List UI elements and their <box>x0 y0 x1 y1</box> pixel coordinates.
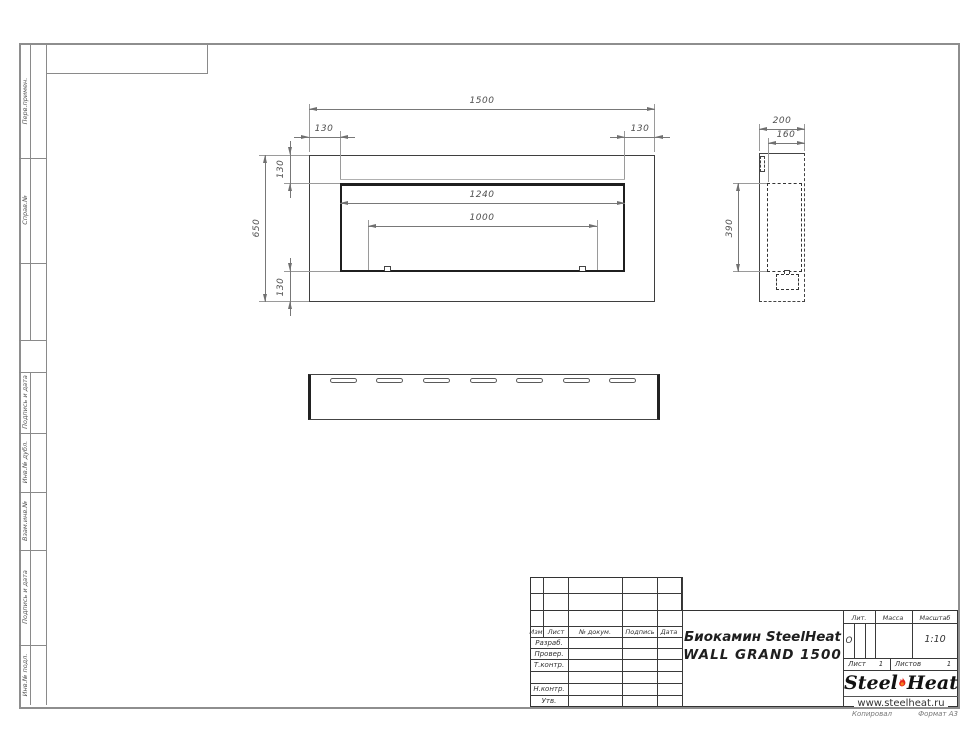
title-block-line <box>843 658 958 659</box>
margin-divider-line <box>30 45 31 340</box>
dim-value-total-width: 1500 <box>470 96 495 106</box>
row-label-prover: Провер. <box>534 650 563 658</box>
dim-arrow <box>288 147 292 155</box>
title-block-line <box>890 658 891 670</box>
margin-section-line <box>19 263 47 264</box>
margin-label: Подпись и дата <box>21 375 29 429</box>
inner-frame-line <box>46 45 47 705</box>
dim-value-depth: 200 <box>773 116 792 126</box>
burner-clip <box>384 266 391 271</box>
air-slot <box>609 378 636 383</box>
dim-arrow <box>768 141 776 145</box>
title-block-line <box>543 577 544 610</box>
dim-arrow <box>288 301 292 309</box>
scale-value: 1:10 <box>924 634 945 645</box>
side-view-burner-dashed <box>776 274 799 290</box>
sheet-label: Лист <box>848 660 866 668</box>
product-title-cell: Биокамин SteelHeat WALL GRAND 1500 <box>682 610 843 707</box>
col-header-date: Дата <box>661 628 678 636</box>
margin-divider-line <box>30 372 31 705</box>
dim-value-offset-bottom: 130 <box>276 278 286 297</box>
margin-label: Взам.инв.№ <box>21 501 29 541</box>
dim-value-opening-height: 390 <box>725 219 735 238</box>
title-block-line <box>843 623 958 624</box>
title-block-line <box>875 610 876 658</box>
dim-arrow <box>263 155 267 163</box>
col-header-izm: Изм. <box>529 628 544 636</box>
dim-value-height: 650 <box>252 219 262 238</box>
dim-arrow <box>288 183 292 191</box>
extension-line <box>654 104 655 152</box>
dim-arrow <box>647 107 655 111</box>
dim-line-1240 <box>340 203 625 204</box>
mass-header: Масса <box>883 614 904 622</box>
air-slot <box>376 378 403 383</box>
dim-arrow <box>736 264 740 272</box>
dim-arrow <box>263 294 267 302</box>
sheets-label: Листов <box>895 660 921 668</box>
margin-section-line <box>19 340 47 341</box>
extension-line <box>284 183 340 184</box>
title-block-line <box>530 695 682 696</box>
dim-arrow <box>340 201 348 205</box>
dim-arrow <box>655 135 663 139</box>
title-block-line <box>530 626 682 627</box>
lit-value: О <box>846 636 853 646</box>
margin-section-line <box>19 372 47 373</box>
flame-icon <box>899 672 906 692</box>
copied-label: Копировал <box>852 710 892 718</box>
dim-arrow <box>797 141 805 145</box>
extension-line <box>597 220 598 270</box>
margin-section-line <box>19 645 47 646</box>
margin-label: Подпись и дата <box>21 570 29 624</box>
row-label-utv: Утв. <box>542 697 557 705</box>
extension-line <box>309 104 310 152</box>
front-view-glass-line <box>340 179 625 180</box>
dim-line-1000 <box>368 226 597 227</box>
title-block-line <box>530 671 682 672</box>
air-slot <box>563 378 590 383</box>
dim-line-1500 <box>309 109 655 110</box>
dim-arrow <box>797 127 805 131</box>
row-label-razrab: Разраб. <box>535 639 563 647</box>
title-block-line <box>622 577 623 610</box>
dim-arrow <box>301 135 309 139</box>
title-block-line <box>854 623 855 658</box>
dim-arrow <box>759 127 767 131</box>
format-label: Формат А3 <box>918 710 958 718</box>
col-header-sign: Подпись <box>625 628 654 636</box>
title-block-line <box>530 648 682 649</box>
side-view-bracket-dashed <box>760 156 765 172</box>
title-block-line <box>865 623 866 658</box>
dim-value-offset-right: 130 <box>631 124 650 134</box>
top-stamp-line <box>207 45 208 74</box>
dim-value-offset-left: 130 <box>315 124 334 134</box>
scale-header: Масштаб <box>920 614 951 622</box>
dim-value-offset-top: 130 <box>276 160 286 179</box>
dim-value-burner: 1000 <box>470 213 495 223</box>
lit-header: Лит. <box>852 614 867 622</box>
row-label-tkontr: Т.контр. <box>534 661 564 669</box>
title-block-line <box>912 610 913 658</box>
title-block-line <box>530 637 682 638</box>
title-block-line <box>657 577 658 610</box>
side-view-inner-dashed <box>767 183 802 272</box>
dim-arrow <box>288 263 292 271</box>
dim-line-390 <box>738 183 739 272</box>
product-name-line1: Биокамин SteelHeat <box>684 629 841 645</box>
sheet-value: 1 <box>879 660 883 668</box>
air-slot <box>330 378 357 383</box>
dim-value-opening: 1240 <box>470 190 495 200</box>
extension-line <box>284 271 340 272</box>
dim-arrow <box>368 224 376 228</box>
dim-line-650 <box>265 155 266 302</box>
margin-label: Справ.№ <box>21 195 29 225</box>
margin-section-line <box>19 158 47 159</box>
margin-section-line <box>19 492 47 493</box>
air-slot <box>423 378 450 383</box>
dim-arrow <box>617 201 625 205</box>
dim-arrow <box>736 183 740 191</box>
drawing-sheet: Перв.примен. Справ.№ Подпись и дата Инв.… <box>0 0 970 749</box>
logo-url: www.steelheat.ru <box>854 698 947 707</box>
dim-arrow <box>589 224 597 228</box>
air-slot <box>516 378 543 383</box>
dim-arrow <box>617 135 625 139</box>
margin-label: Инв.№ подл. <box>21 654 29 697</box>
margin-section-line <box>19 433 47 434</box>
steelheat-logo: Steel Heat www.steelheat.ru <box>844 670 958 707</box>
margin-label: Инв.№ дубл. <box>21 441 29 483</box>
dim-arrow <box>309 107 317 111</box>
burner-clip <box>579 266 586 271</box>
margin-label: Перв.примен. <box>21 78 29 125</box>
dim-arrow <box>340 135 348 139</box>
col-header-list: Лист <box>548 628 564 636</box>
margin-section-line <box>19 550 47 551</box>
logo-underline <box>844 696 958 697</box>
sheets-value: 1 <box>947 660 951 668</box>
title-block-line <box>530 593 682 594</box>
title-block-line <box>530 683 682 684</box>
dim-value-inner-depth: 160 <box>777 130 796 140</box>
top-stamp-line <box>47 73 208 74</box>
title-block-line <box>530 659 682 660</box>
product-name-line2: WALL GRAND 1500 <box>683 647 841 663</box>
air-slot <box>470 378 497 383</box>
row-label-nkontr: Н.контр. <box>533 685 564 693</box>
side-view-burner-notch <box>784 270 790 274</box>
col-header-doc: № докум. <box>579 628 611 636</box>
title-block-line <box>568 577 569 610</box>
